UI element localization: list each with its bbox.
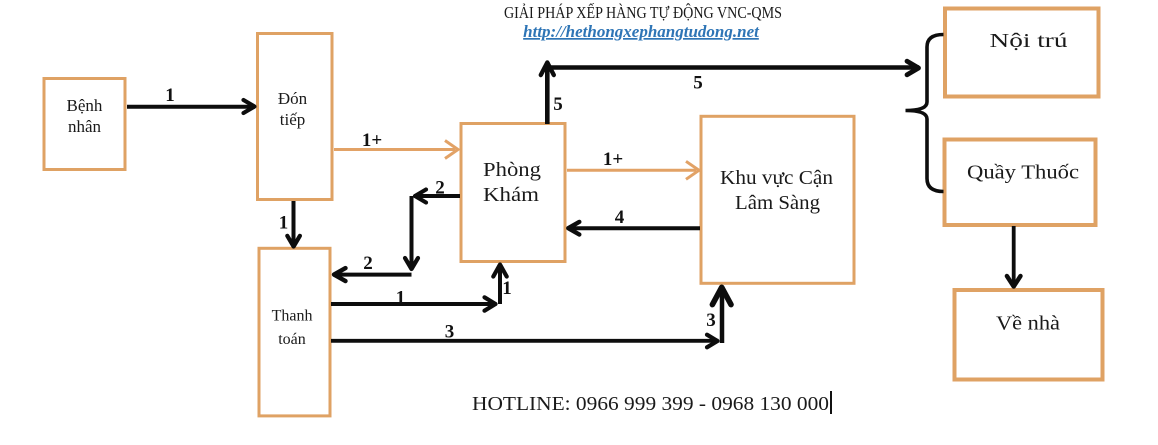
svg-text:1: 1 [502,278,512,299]
svg-text:2: 2 [435,178,445,199]
svg-text:1+: 1+ [362,130,382,151]
svg-text:Về nhà: Về nhà [996,313,1060,335]
svg-text:Nội trú: Nội trú [990,30,1068,52]
svg-text:Quầy Thuốc: Quầy Thuốc [967,162,1079,184]
svg-text:5: 5 [553,94,563,115]
svg-text:Khu vực Cận: Khu vực Cận [720,167,833,189]
svg-text:1+: 1+ [603,149,623,170]
svg-text:1: 1 [165,85,175,106]
svg-text:Phòng: Phòng [483,159,541,181]
svg-text:3: 3 [445,322,455,343]
svg-text:4: 4 [615,207,625,228]
svg-text:http://hethongxephangtudong.ne: http://hethongxephangtudong.net [523,22,760,41]
svg-text:1: 1 [396,288,406,309]
svg-text:Khám: Khám [483,184,539,206]
svg-text:1: 1 [279,213,289,234]
svg-text:3: 3 [706,310,716,331]
svg-text:2: 2 [363,253,373,274]
svg-text:Lâm Sàng: Lâm Sàng [735,192,820,214]
svg-text:HOTLINE: 0966 999 399 - 0968 1: HOTLINE: 0966 999 399 - 0968 130 000 [472,393,829,415]
svg-text:GIẢI PHÁP XẾP HÀNG TỰ ĐỘNG VNC: GIẢI PHÁP XẾP HÀNG TỰ ĐỘNG VNC-QMS [504,3,782,22]
svg-text:5: 5 [693,73,703,94]
